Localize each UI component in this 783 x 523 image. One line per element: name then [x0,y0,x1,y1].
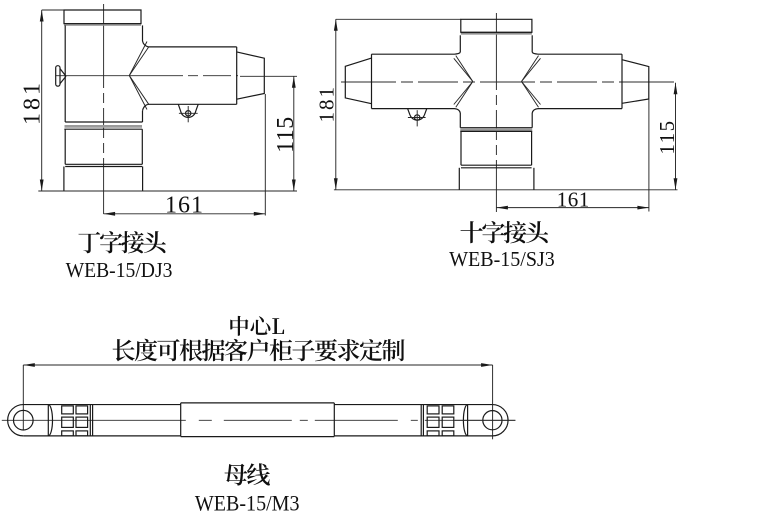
svg-text:115: 115 [273,116,299,153]
svg-text:WEB-15/M3: WEB-15/M3 [195,491,300,516]
svg-text:181: 181 [315,85,339,123]
svg-text:WEB-15/SJ3: WEB-15/SJ3 [449,247,555,271]
svg-text:161: 161 [165,192,204,218]
svg-text:161: 161 [557,188,590,212]
svg-text:115: 115 [655,119,679,154]
svg-text:181: 181 [20,80,46,125]
svg-text:WEB-15/DJ3: WEB-15/DJ3 [66,258,173,282]
